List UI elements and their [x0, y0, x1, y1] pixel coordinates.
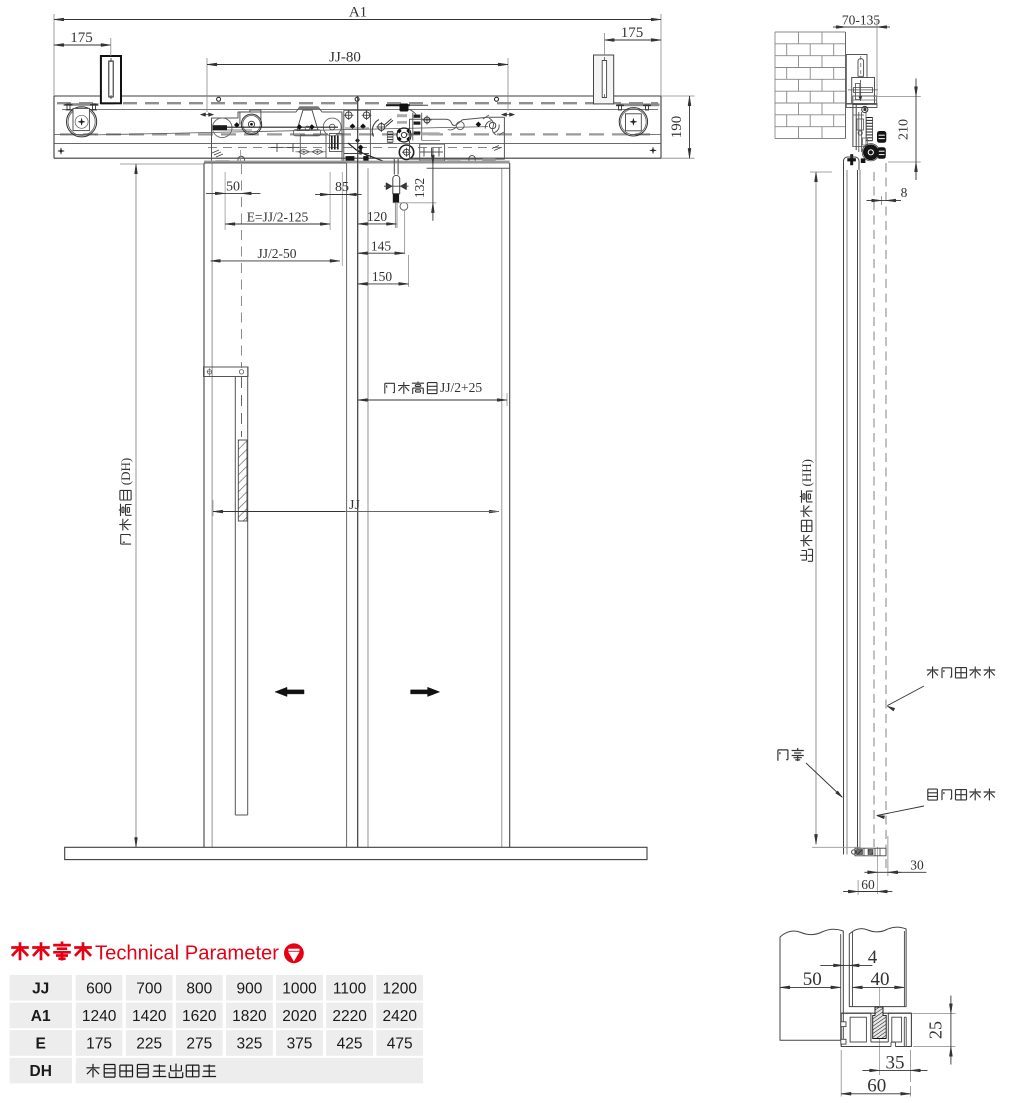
- svg-text:40: 40: [871, 969, 890, 990]
- svg-text:JJ: JJ: [349, 498, 360, 513]
- svg-text:190: 190: [669, 116, 685, 139]
- svg-text:JJ: JJ: [32, 980, 49, 997]
- svg-text:60: 60: [861, 877, 875, 892]
- svg-text:35: 35: [886, 1053, 905, 1074]
- svg-text:1200: 1200: [382, 980, 417, 997]
- svg-text:2220: 2220: [332, 1008, 367, 1025]
- svg-text:4: 4: [868, 947, 878, 968]
- svg-text:(DH): (DH): [118, 458, 133, 485]
- svg-text:1420: 1420: [132, 1008, 167, 1025]
- svg-text:175: 175: [621, 25, 644, 41]
- svg-text:175: 175: [70, 30, 93, 46]
- svg-text:JJ-80: JJ-80: [329, 50, 361, 66]
- svg-text:E=JJ/2-125: E=JJ/2-125: [247, 209, 309, 224]
- svg-text:325: 325: [236, 1036, 262, 1053]
- svg-text:120: 120: [367, 209, 388, 224]
- svg-text:25: 25: [926, 1021, 946, 1039]
- svg-text:800: 800: [186, 980, 212, 997]
- svg-text:132: 132: [412, 178, 427, 198]
- svg-text:2420: 2420: [382, 1008, 417, 1025]
- svg-text:145: 145: [371, 239, 392, 254]
- svg-text:30: 30: [910, 858, 924, 873]
- svg-text:50: 50: [226, 180, 240, 195]
- svg-text:700: 700: [136, 980, 162, 997]
- svg-text:2020: 2020: [282, 1008, 317, 1025]
- svg-text:900: 900: [236, 980, 262, 997]
- svg-text:175: 175: [86, 1036, 112, 1053]
- svg-text:1620: 1620: [182, 1008, 217, 1025]
- svg-text:425: 425: [337, 1036, 363, 1053]
- svg-text:1820: 1820: [232, 1008, 267, 1025]
- svg-text:JJ/2-50: JJ/2-50: [257, 246, 296, 261]
- svg-text:375: 375: [287, 1036, 313, 1053]
- svg-text:70-135: 70-135: [842, 12, 880, 27]
- svg-text:1000: 1000: [282, 980, 317, 997]
- svg-text:Technical Parameter: Technical Parameter: [95, 943, 279, 965]
- svg-text:475: 475: [387, 1036, 413, 1053]
- svg-text:150: 150: [372, 269, 393, 284]
- svg-text:8: 8: [901, 185, 908, 200]
- svg-text:275: 275: [186, 1036, 212, 1053]
- svg-text:DH: DH: [30, 1063, 52, 1080]
- svg-text:85: 85: [335, 180, 349, 195]
- svg-text:A1: A1: [31, 1008, 51, 1025]
- svg-text:A1: A1: [349, 5, 367, 21]
- svg-text:225: 225: [136, 1036, 162, 1053]
- svg-text:210: 210: [897, 119, 912, 140]
- svg-text:1240: 1240: [82, 1008, 117, 1025]
- svg-text:50: 50: [803, 969, 822, 990]
- svg-text:60: 60: [867, 1076, 886, 1097]
- svg-text:JJ/2+25: JJ/2+25: [440, 380, 482, 395]
- svg-text:(HH): (HH): [799, 459, 814, 486]
- svg-text:1100: 1100: [333, 980, 367, 997]
- svg-text:600: 600: [86, 980, 112, 997]
- svg-text:E: E: [36, 1036, 46, 1053]
